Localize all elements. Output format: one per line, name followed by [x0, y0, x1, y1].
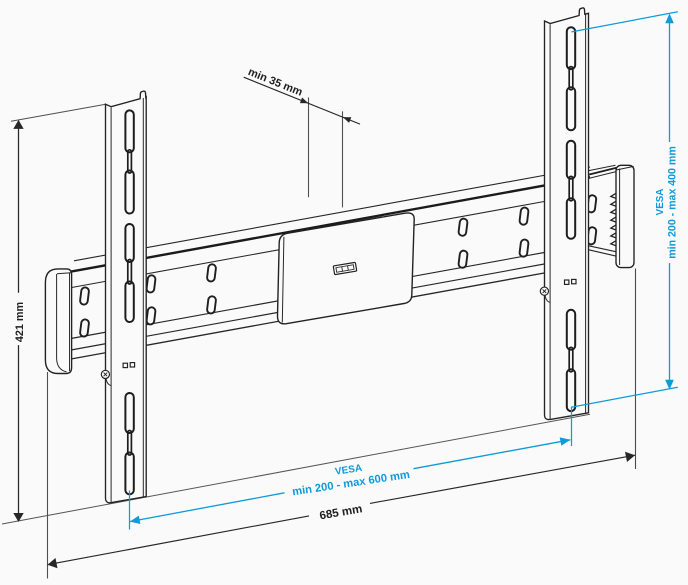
svg-text:421 mm: 421 mm — [14, 302, 26, 342]
svg-text:min 200 - max 400 mm: min 200 - max 400 mm — [667, 146, 679, 258]
svg-text:VESA: VESA — [655, 189, 666, 216]
